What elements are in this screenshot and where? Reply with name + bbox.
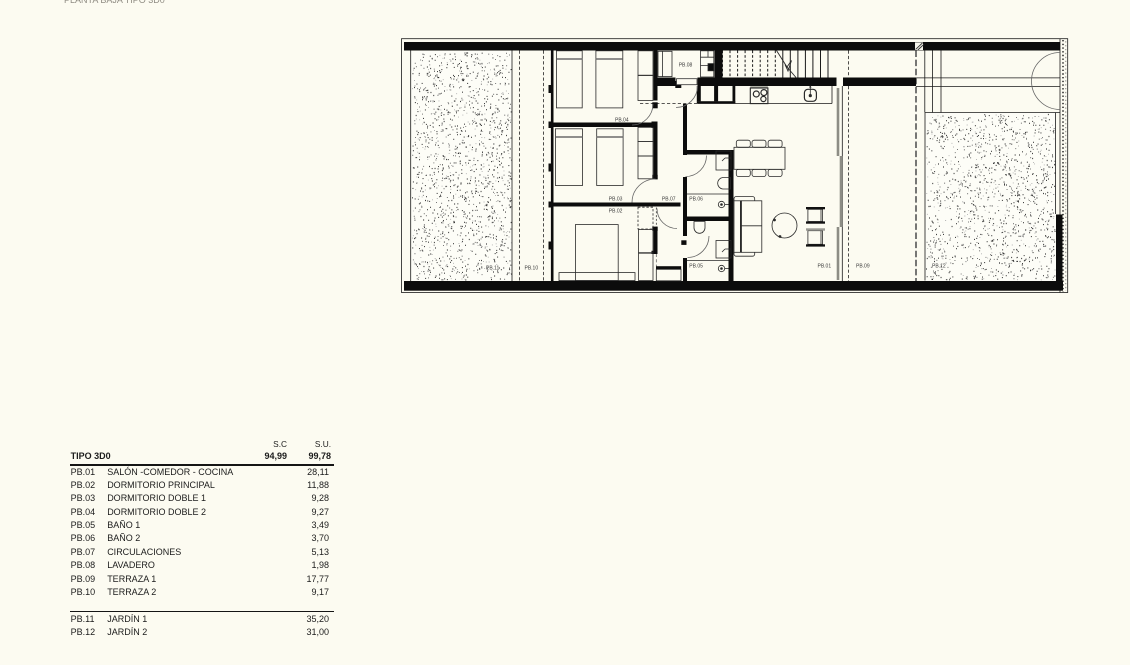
- svg-text:PB.08: PB.08: [679, 63, 693, 69]
- svg-text:PB.01: PB.01: [818, 264, 832, 270]
- svg-text:PB.06: PB.06: [689, 197, 703, 203]
- svg-text:PB.07: PB.07: [662, 196, 676, 202]
- svg-text:PB.05: PB.05: [689, 263, 703, 269]
- svg-text:PB.10: PB.10: [525, 266, 539, 272]
- svg-text:PB.03: PB.03: [609, 196, 623, 202]
- svg-text:PB.12: PB.12: [932, 264, 946, 270]
- svg-text:PB.04: PB.04: [615, 117, 629, 123]
- svg-text:PB.02: PB.02: [609, 208, 623, 214]
- svg-text:PB.11: PB.11: [486, 266, 499, 272]
- svg-text:PB.09: PB.09: [856, 264, 870, 270]
